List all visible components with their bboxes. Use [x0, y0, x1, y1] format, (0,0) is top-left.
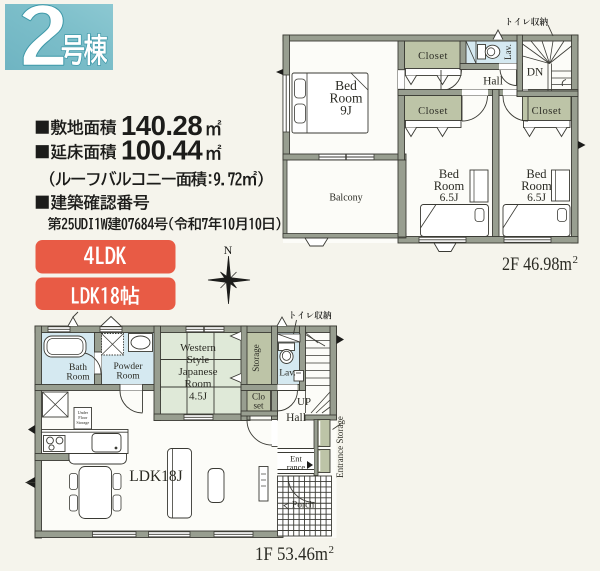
svg-text:Closet: Closet [532, 106, 562, 117]
svg-text:4.5J: 4.5J [189, 391, 208, 403]
svg-text:N: N [224, 243, 233, 257]
svg-text:6.5J: 6.5J [440, 192, 459, 204]
svg-text:Room: Room [66, 373, 90, 383]
svg-text:Room: Room [521, 179, 552, 193]
svg-text:2F 46.98m: 2F 46.98m [502, 254, 572, 275]
svg-text:Style: Style [187, 354, 210, 366]
svg-text:Powder: Powder [113, 362, 143, 372]
svg-text:100.44: 100.44 [121, 135, 203, 166]
svg-text:Porch: Porch [292, 501, 314, 511]
svg-text:UP: UP [297, 396, 311, 408]
svg-text:Storage: Storage [251, 344, 261, 372]
svg-text:Western: Western [180, 342, 216, 354]
svg-text:Lav.: Lav. [279, 369, 296, 379]
svg-text:Room: Room [185, 378, 212, 390]
svg-text:Hall: Hall [286, 412, 306, 424]
svg-text:LDK18J: LDK18J [129, 468, 182, 485]
svg-text:6.5J: 6.5J [527, 192, 546, 204]
svg-text:Lav.: Lav. [503, 44, 513, 60]
svg-text:Bath: Bath [69, 363, 87, 373]
svg-text:Entrance Storage: Entrance Storage [335, 416, 345, 478]
svg-text:Closet: Closet [418, 106, 448, 117]
svg-text:2: 2 [573, 254, 579, 266]
svg-text:2: 2 [329, 544, 335, 556]
svg-text:Balcony: Balcony [329, 193, 362, 204]
svg-text:Japanese: Japanese [178, 366, 217, 378]
svg-text:1F 53.46m: 1F 53.46m [255, 544, 328, 565]
svg-text:Storage: Storage [76, 420, 89, 425]
svg-text:rance: rance [287, 462, 306, 472]
svg-text:9J: 9J [340, 103, 352, 118]
svg-text:Room: Room [434, 179, 465, 193]
svg-text:Room: Room [116, 372, 140, 382]
svg-text:Closet: Closet [418, 51, 448, 62]
svg-text:Hall: Hall [483, 76, 503, 88]
svg-text:DN: DN [527, 67, 544, 79]
svg-text:set: set [254, 401, 264, 411]
